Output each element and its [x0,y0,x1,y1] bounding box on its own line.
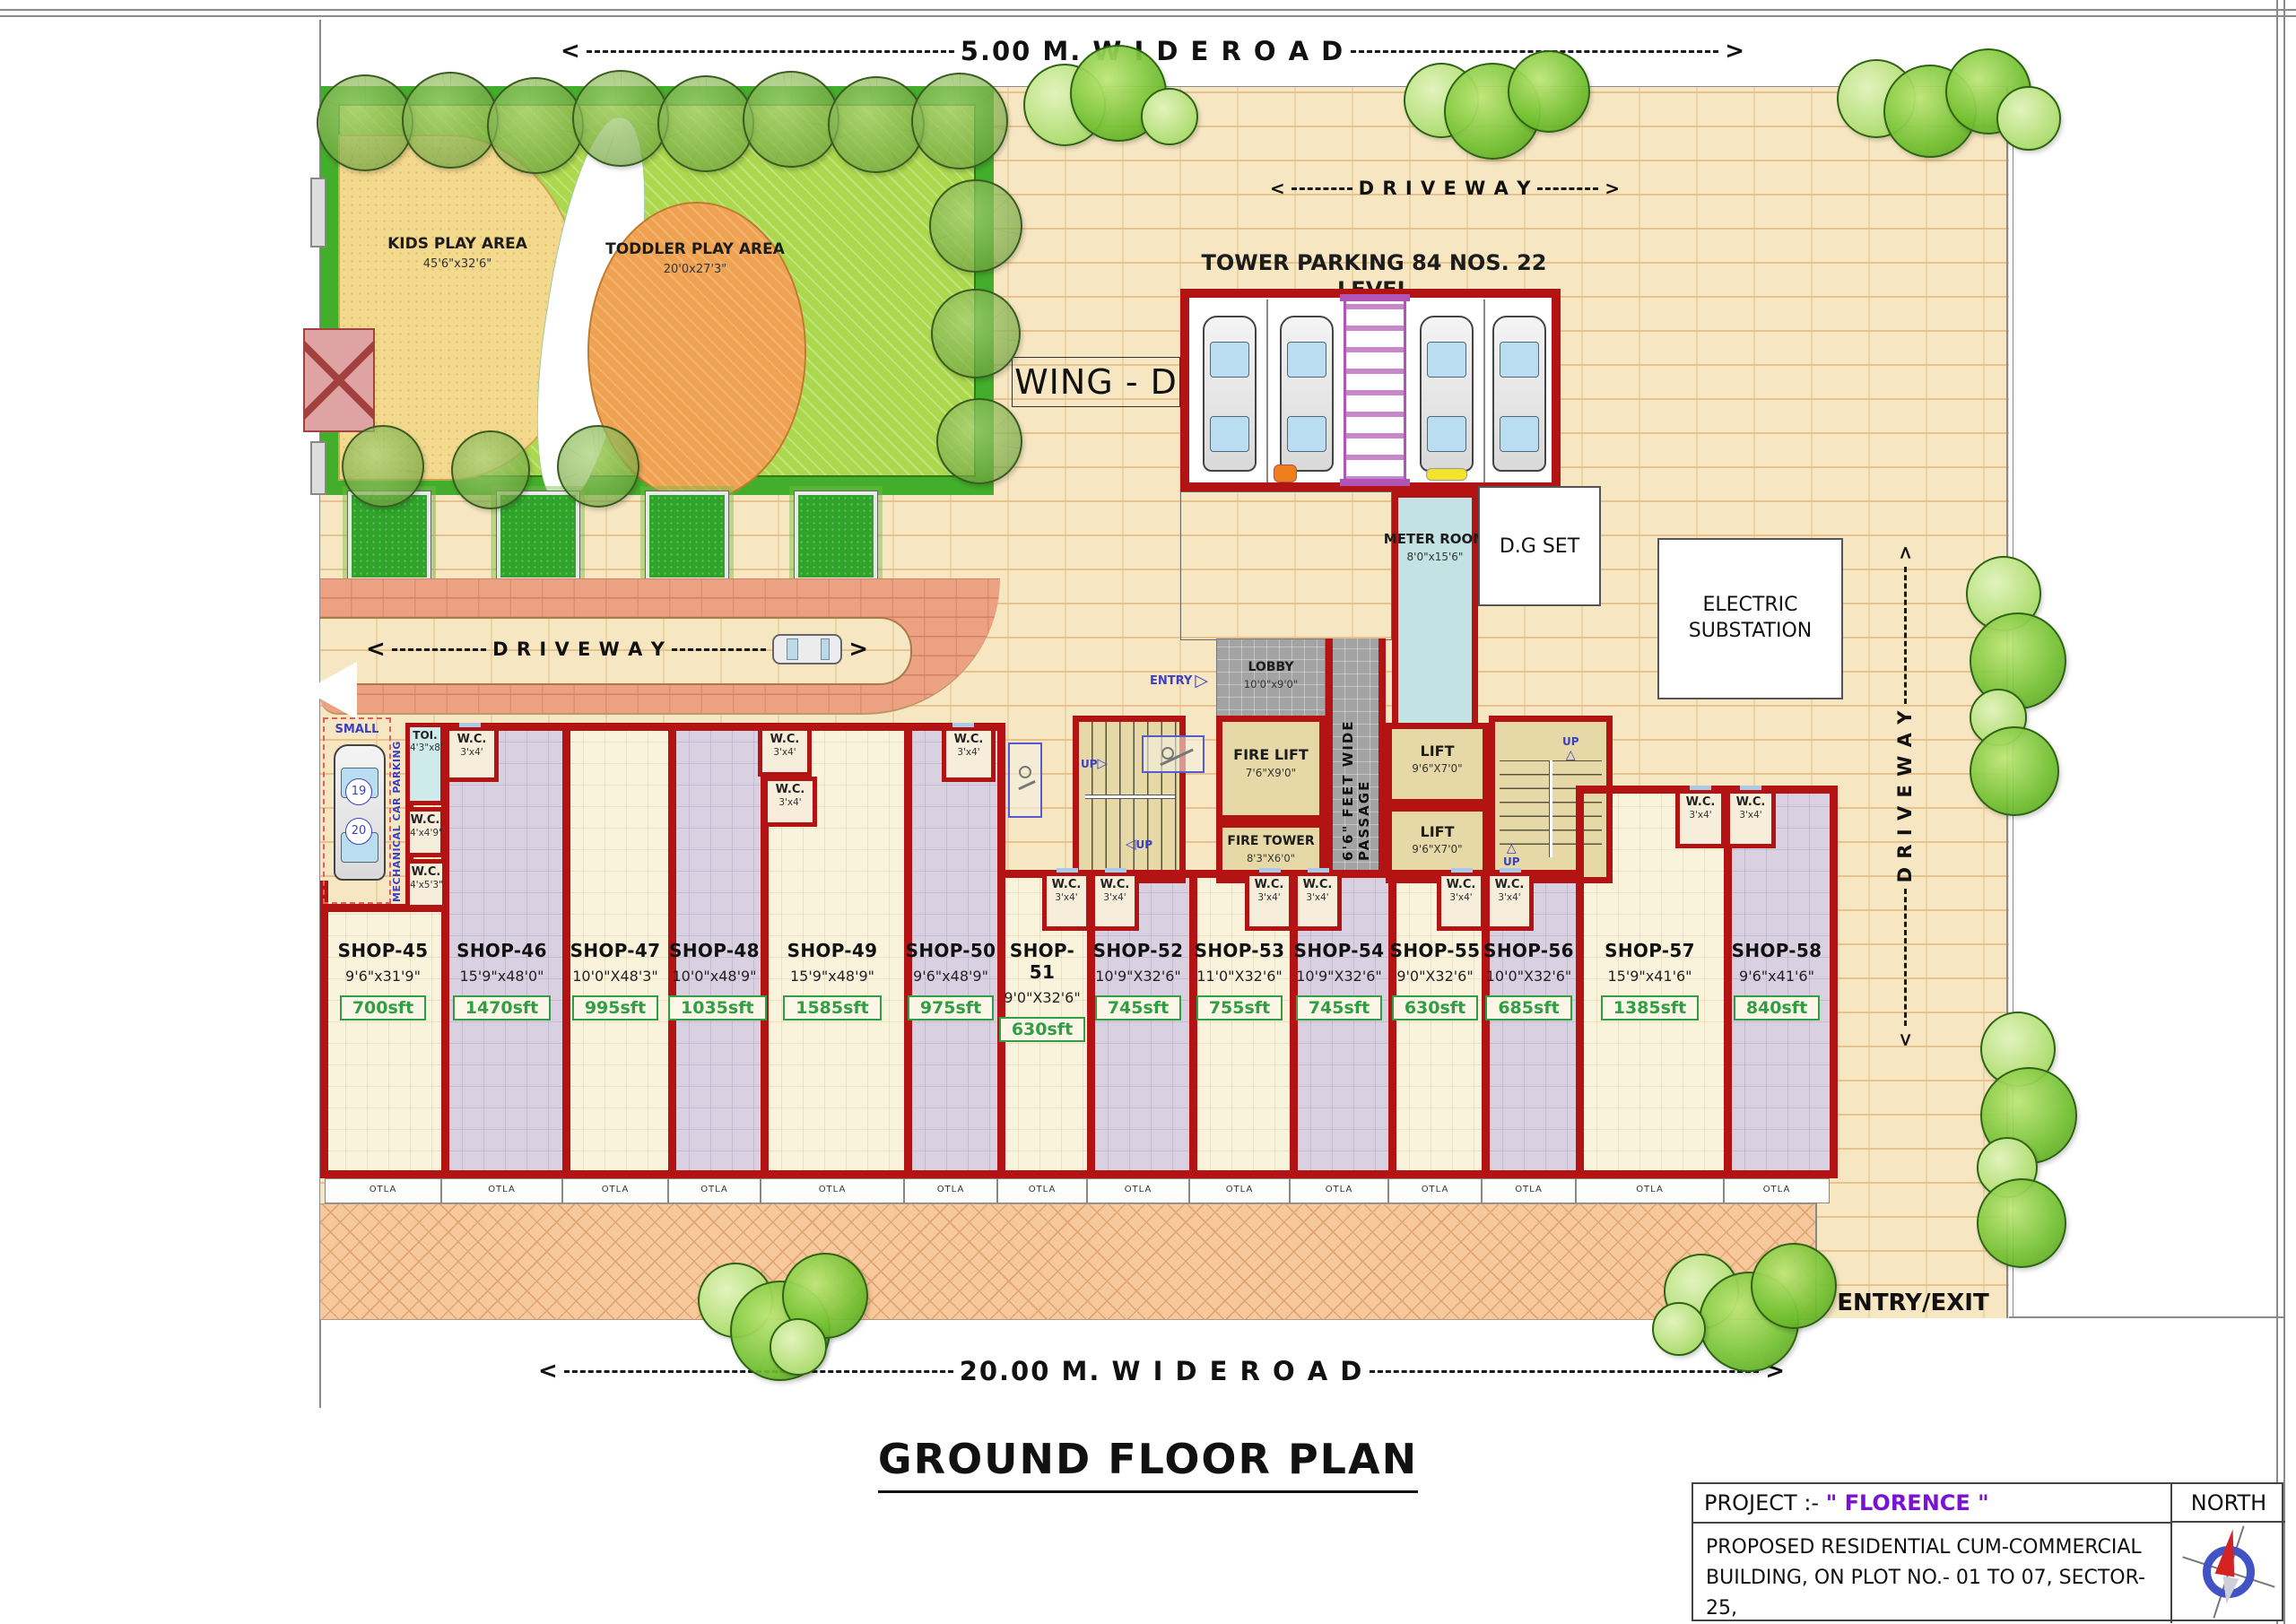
dash-line [1370,1370,1759,1373]
arrow-left: < [1270,179,1285,197]
shop-label-56: SHOP-5610'0"X32'6"685sft [1482,940,1576,1020]
shop-label-53: SHOP-5311'0"X32'6"755sft [1189,940,1290,1020]
dash-line [392,648,486,651]
driveway-label-line: < D R I V E W A Y > [366,634,868,664]
tree [317,74,413,171]
play-equipment [310,178,326,248]
wc-room: W.C.3'x4' [758,726,812,777]
wing-label: WING - D [1014,362,1178,402]
tree [1996,86,2061,151]
parked-car [1492,316,1546,472]
lobby-label: LOBBY 10'0"x9'0" [1216,660,1326,690]
tree [342,425,424,508]
parked-car [1420,316,1474,472]
fire-tower-label: FIRE TOWER 8'3"X6'0" [1216,834,1326,864]
door-lintel [1057,868,1078,873]
wc-room: W.C.3'x4' [1726,789,1776,848]
north-label: NORTH [2172,1484,2285,1523]
kids-play-label: KIDS PLAY AREA 45'6"x32'6" [359,235,556,273]
dash-line [1291,187,1352,190]
tree [572,70,669,167]
small-car-label: SMALL [325,723,389,736]
otla-cell: OTLA [1388,1178,1482,1203]
otla-cell: OTLA [1087,1178,1189,1203]
up-label: △UP [1503,841,1520,868]
entry-label: ENTRY▷ [1150,671,1208,690]
plot-bottom-line-ext [2007,1316,2283,1318]
wc-room: W.C.3'x4' [1437,872,1485,931]
wc-room: W.C.4'x5'3" [405,859,447,909]
floor-plan-page: KIDS PLAY AREA 45'6"x32'6" TODDLER PLAY … [0,0,2296,1624]
shop-label-47: SHOP-4710'0"X48'3"995sft [562,940,668,1020]
otla-cell: OTLA [1290,1178,1388,1203]
meter-room-label: METER ROOM 8'0"x15'6" [1381,531,1489,564]
shop-label-52: SHOP-5210'9"X32'6"745sft [1087,940,1189,1020]
tree [936,398,1022,484]
car-icon [772,634,842,664]
toddler-play-label: TODDLER PLAY AREA 20'0x27'3" [596,240,794,278]
project-name: " FLORENCE " [1826,1490,1989,1515]
toilet-room: TOI. 4'3"x8' [405,723,445,805]
shop-label-54: SHOP-5410'9"X32'6"745sft [1290,940,1388,1020]
wall [1830,786,1838,1178]
bay-divider [1266,300,1268,482]
tree [1751,1243,1837,1329]
slot-20: 20 [345,818,372,845]
play-equipment-2 [310,441,326,495]
door-lintel [1451,868,1473,873]
arrow-right: > [1896,545,1914,560]
tree [1508,50,1590,133]
wall [320,881,328,1178]
planter-box [646,491,728,581]
door-lintel [1690,786,1711,790]
entry-arrow-icon: ▷ [1195,671,1208,690]
arrow-right: > [1725,39,1744,63]
right-driveway-label: D R I V E W A Y [1894,710,1916,883]
up-arrow-icon: ◁ [1126,836,1136,852]
shop-label-51: SHOP-519'0"X32'6"630sft [997,940,1087,1042]
door-lintel [1259,868,1281,873]
fire-lift-label: FIRE LIFT 7'6"X9'0" [1216,746,1326,780]
otla-cell: OTLA [668,1178,761,1203]
wc-room: W.C.3'x4' [942,726,996,782]
battery-icon [1426,468,1467,481]
wc-room: W.C.3'x4' [1245,872,1293,931]
plan-title: GROUND FLOOR PLAN [0,1435,2296,1483]
wc-room: W.C.3'x4' [1485,872,1534,931]
stairs-right-divider [1549,760,1552,857]
wing-label-box: WING - D [1012,357,1180,407]
slot-19: 19 [345,778,372,805]
wall [1388,870,1396,1178]
tree [1141,88,1198,145]
project-title-row: PROJECT :- " FLORENCE " [1693,1484,2170,1524]
gazebo [303,328,375,432]
page-border-right-2 [2283,0,2285,1624]
dg-set-label: D.G SET [1500,535,1579,558]
project-table: PROJECT :- " FLORENCE " PROPOSED RESIDEN… [1692,1482,2283,1621]
door-lintel [1740,786,1761,790]
up-label: ◁UP [1126,836,1152,852]
entry-exit-label: ENTRY/EXIT [1821,1290,2005,1316]
bottom-pavement [320,1203,1815,1320]
robot-shuttle-icon [1274,465,1297,482]
door-lintel [952,723,974,727]
parked-car [1280,316,1334,472]
dg-set-room: D.G SET [1478,486,1601,606]
tree [931,289,1021,378]
otla-cell: OTLA [1189,1178,1290,1203]
otla-cell: OTLA [1482,1178,1576,1203]
small-car [334,744,386,881]
project-label: PROJECT :- [1704,1490,1819,1515]
dash-line [672,648,766,651]
otla-cell: OTLA [562,1178,668,1203]
electric-substation: ELECTRIC SUBSTATION [1657,538,1843,699]
shop-label-45: SHOP-459'6"x31'9"700sft [325,940,441,1020]
otla-cell: OTLA [997,1178,1087,1203]
wc-room: W.C.3'x4' [445,726,499,782]
two-wheeler-icon [1008,743,1042,818]
door-lintel [459,723,481,727]
tree [929,179,1022,273]
up-arrow-icon: △ [1503,841,1520,855]
otla-cell: OTLA [1576,1178,1724,1203]
planter-box [795,491,877,581]
top-driveway-line: < D R I V E W A Y > [1270,178,1620,199]
substation-label: ELECTRIC SUBSTATION [1679,593,1822,644]
otla-cell: OTLA [761,1178,904,1203]
two-wheeler-icon [1142,735,1205,773]
up-arrow-icon: △ [1562,748,1579,762]
arrow-left: < [366,638,386,661]
arrow-left: < [561,39,580,63]
tree [743,71,839,168]
tree [557,425,639,508]
page-border-right-1 [2276,0,2278,1624]
driveway-label: D R I V E W A Y [492,638,665,660]
arrow-right: > [848,638,868,661]
car-lift-platform [1344,296,1406,484]
tree [911,73,1008,169]
shop-label-48: SHOP-4810'0"x48'9"1035sft [668,940,761,1020]
platform-cap-top [1340,294,1410,301]
dash-line [1904,567,1907,704]
shop-label-57: SHOP-5715'9"x41'6"1385sft [1576,940,1724,1020]
tree [487,77,584,174]
wc-room: W.C.3'x4' [1042,872,1091,931]
right-driveway-line: < D R I V E W A Y > [1894,545,1916,1047]
mech-parking-label: MECHANICAL CAR PARKING [391,723,403,902]
tree [770,1318,827,1376]
arrow-left: < [538,1359,558,1383]
door-lintel [1500,868,1521,873]
shop-label-49: SHOP-4915'9"x48'9"1585sft [761,940,904,1020]
bay-divider [1483,300,1485,482]
wc-room: W.C.3'x4' [763,777,817,827]
dash-line [1904,889,1907,1026]
arrow-left: < [1896,1032,1914,1047]
wall [320,1170,1838,1178]
hall-outline [1180,491,1392,640]
tree [657,75,754,172]
wc-room: W.C.3'x4' [1091,872,1139,931]
door-lintel [1308,868,1329,873]
project-info-cell: PROJECT :- " FLORENCE " PROPOSED RESIDEN… [1693,1484,2172,1623]
planter-box [497,491,579,581]
lift-2-label: LIFT 9'6"X7'0" [1386,823,1489,856]
shop-label-46: SHOP-4615'9"x48'0"1470sft [441,940,562,1020]
tree [828,76,925,173]
driveway-top-label: D R I V E W A Y [1359,178,1532,199]
otla-cell: OTLA [1724,1178,1830,1203]
wc-room: W.C.3'x4' [1293,872,1342,931]
tree [451,430,530,509]
passage-label: 6'6" FEET WIDE PASSAGE [1340,655,1372,861]
tree [1977,1178,2066,1268]
page-border-top-1 [0,9,2296,11]
tree [402,72,499,169]
project-description: PROPOSED RESIDENTIAL CUM-COMMERCIAL BUIL… [1693,1524,2170,1624]
stairs-left-divider [1085,795,1175,799]
arrow-right: > [1605,179,1620,197]
north-cell: NORTH [2172,1484,2285,1623]
wc-room: W.C.3'x4' [1675,789,1726,848]
up-label: UP▷ [1081,755,1108,771]
lift-1-label: LIFT 9'6"X7'0" [1386,743,1489,776]
wc-room: W.C.4'x4'9" [405,807,445,857]
otla-cell: OTLA [441,1178,562,1203]
bottom-road-label: 20.00 M. W I D E R O A D [960,1356,1364,1386]
platform-cap-bottom [1340,479,1410,486]
wall [1189,870,1197,1178]
shop-label-55: SHOP-559'0"X32'6"630sft [1388,940,1482,1020]
parked-car [1203,316,1257,472]
shop-label-50: SHOP-509'6"x48'9"975sft [904,940,997,1020]
tree [1652,1302,1706,1356]
otla-cell: OTLA [904,1178,997,1203]
otla-cell: OTLA [325,1178,441,1203]
compass-icon [2184,1527,2274,1617]
tree [1970,726,2059,816]
shop-label-58: SHOP-589'6"x41'6"840sft [1724,940,1830,1020]
door-lintel [1105,868,1126,873]
bottom-road-line: < 20.00 M. W I D E R O A D > [538,1356,1785,1386]
dash-line [1537,187,1598,190]
up-arrow-icon: ▷ [1098,755,1109,771]
up-label: UP△ [1562,735,1579,762]
page-border-top-2 [0,15,2296,17]
dash-line [587,50,954,53]
